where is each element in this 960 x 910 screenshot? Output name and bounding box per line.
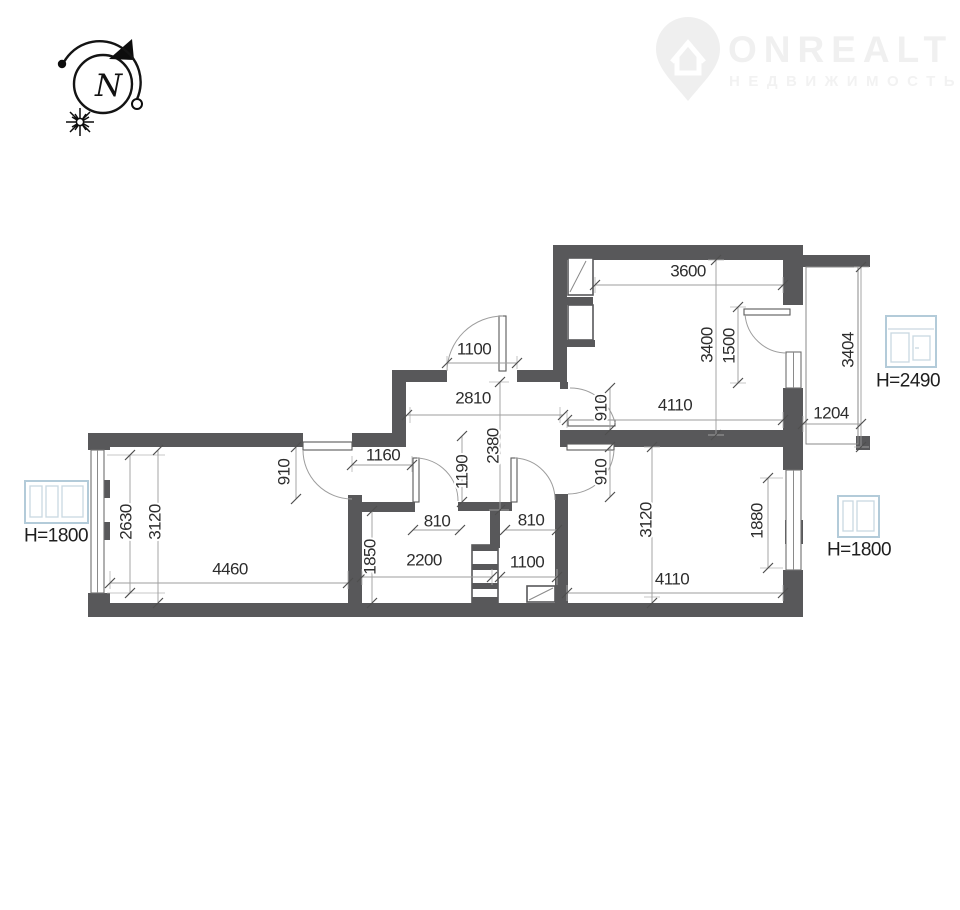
dim-kitchen-door-zone: 1500 xyxy=(720,328,739,364)
dim-balcony-length: 3404 xyxy=(839,332,858,368)
location-pin-icon xyxy=(656,17,720,101)
left-window-height-label: H=1800 xyxy=(24,526,88,547)
compass-open-dot xyxy=(132,99,142,109)
dim-bathroom-width: 1850 xyxy=(361,539,380,575)
dim-entry-door: 1100 xyxy=(457,340,491,359)
left-room-window xyxy=(91,450,104,593)
compass-dot xyxy=(58,60,66,68)
dim-left-room-length: 4460 xyxy=(212,560,248,579)
toilet-door xyxy=(511,458,555,502)
dim-left-room-niche: 1160 xyxy=(366,446,400,465)
dim-left-room-door: 910 xyxy=(275,459,294,486)
floor-plan-drawing: ONREALT НЕДВИЖИМОСТЬ N xyxy=(0,0,960,910)
dim-hall-width: 2380 xyxy=(484,428,503,464)
dim-toilet-door: 810 xyxy=(518,511,545,530)
dim-bathroom-length: 2200 xyxy=(406,551,442,570)
dim-kitchen-top-length: 3600 xyxy=(670,262,706,281)
dim-kitchen-door: 910 xyxy=(592,395,611,422)
compass: N xyxy=(58,39,142,136)
compass-north-letter: N xyxy=(94,68,124,104)
dim-bedroom-window: 1880 xyxy=(748,503,767,539)
brand-name: ONREALT xyxy=(728,29,953,70)
dim-kitchen-width: 3400 xyxy=(698,327,717,363)
dim-balcony-width: 1204 xyxy=(813,404,849,423)
floor-plan-page: ONREALT НЕДВИЖИМОСТЬ N xyxy=(0,0,960,910)
window-icon-right xyxy=(838,496,879,537)
left-room-door xyxy=(303,442,352,499)
dim-bedroom-width: 3120 xyxy=(637,502,656,538)
dim-bathroom-door: 810 xyxy=(424,512,451,531)
dim-hall-length: 2810 xyxy=(455,389,491,408)
sun-icon xyxy=(66,108,94,136)
bathroom-door xyxy=(413,458,458,502)
dim-bedroom-length: 4110 xyxy=(655,570,689,589)
doors xyxy=(303,309,790,502)
brand-watermark: ONREALT НЕДВИЖИМОСТЬ xyxy=(656,17,960,101)
dim-left-room-width: 3120 xyxy=(146,504,165,540)
dim-toilet-width: 1100 xyxy=(510,553,544,572)
balcony-door-height-label: H=2490 xyxy=(876,371,940,392)
balcony-door-icon xyxy=(886,316,936,367)
bedroom-window xyxy=(786,470,801,570)
dim-hall-depth: 1190 xyxy=(453,455,472,489)
balcony-door xyxy=(744,309,790,353)
right-window-height-label: H=1800 xyxy=(827,540,891,561)
brand-subtitle: НЕДВИЖИМОСТЬ xyxy=(729,73,960,90)
window-icon-left xyxy=(25,481,88,523)
dim-bedroom-door: 910 xyxy=(592,459,611,486)
dim-kitchen-length: 4110 xyxy=(658,396,692,415)
dim-left-room-window-width: 2630 xyxy=(117,504,136,540)
balcony-window xyxy=(786,352,801,388)
